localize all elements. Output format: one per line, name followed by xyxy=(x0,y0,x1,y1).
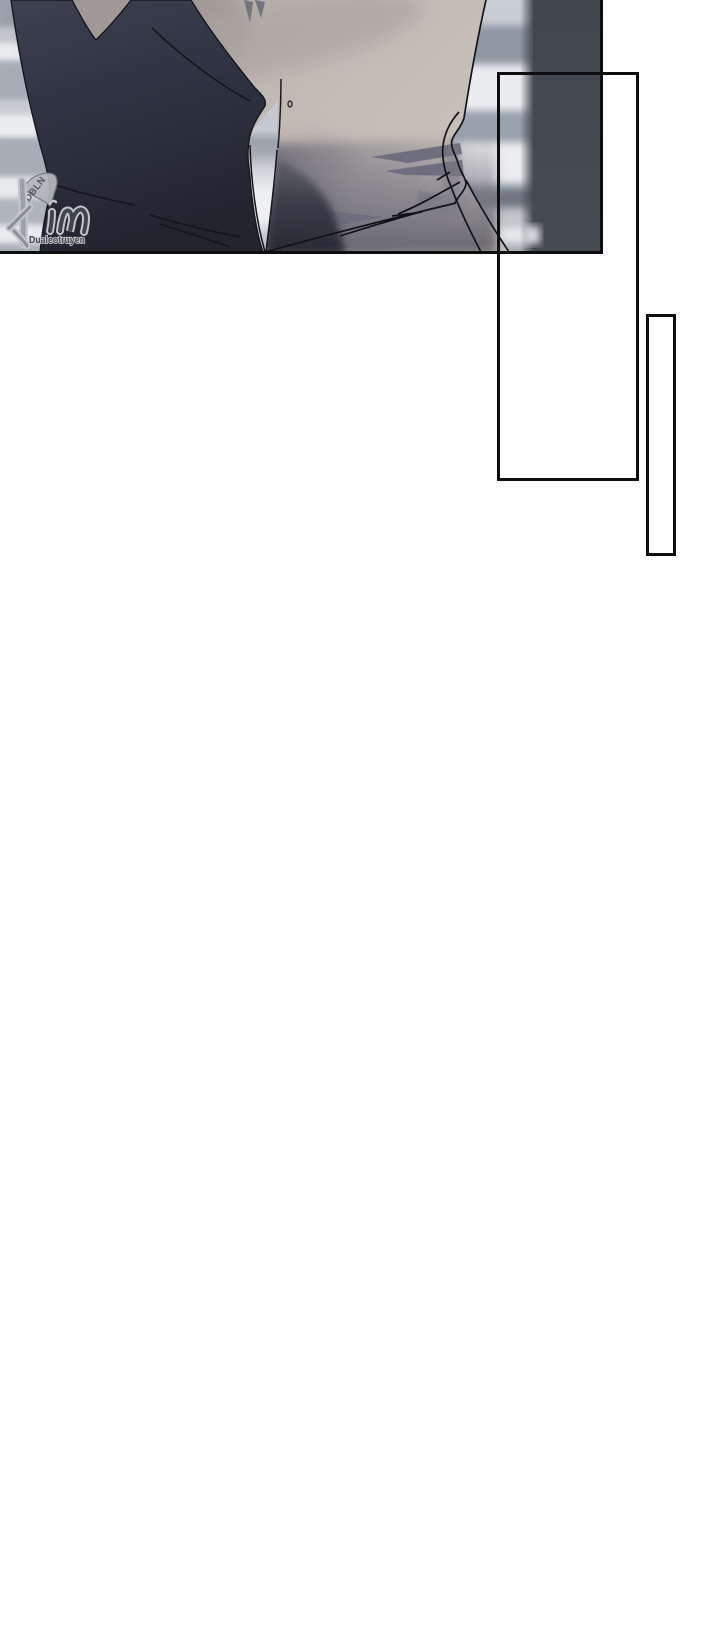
svg-text:Dualeotruyen: Dualeotruyen xyxy=(29,235,85,246)
